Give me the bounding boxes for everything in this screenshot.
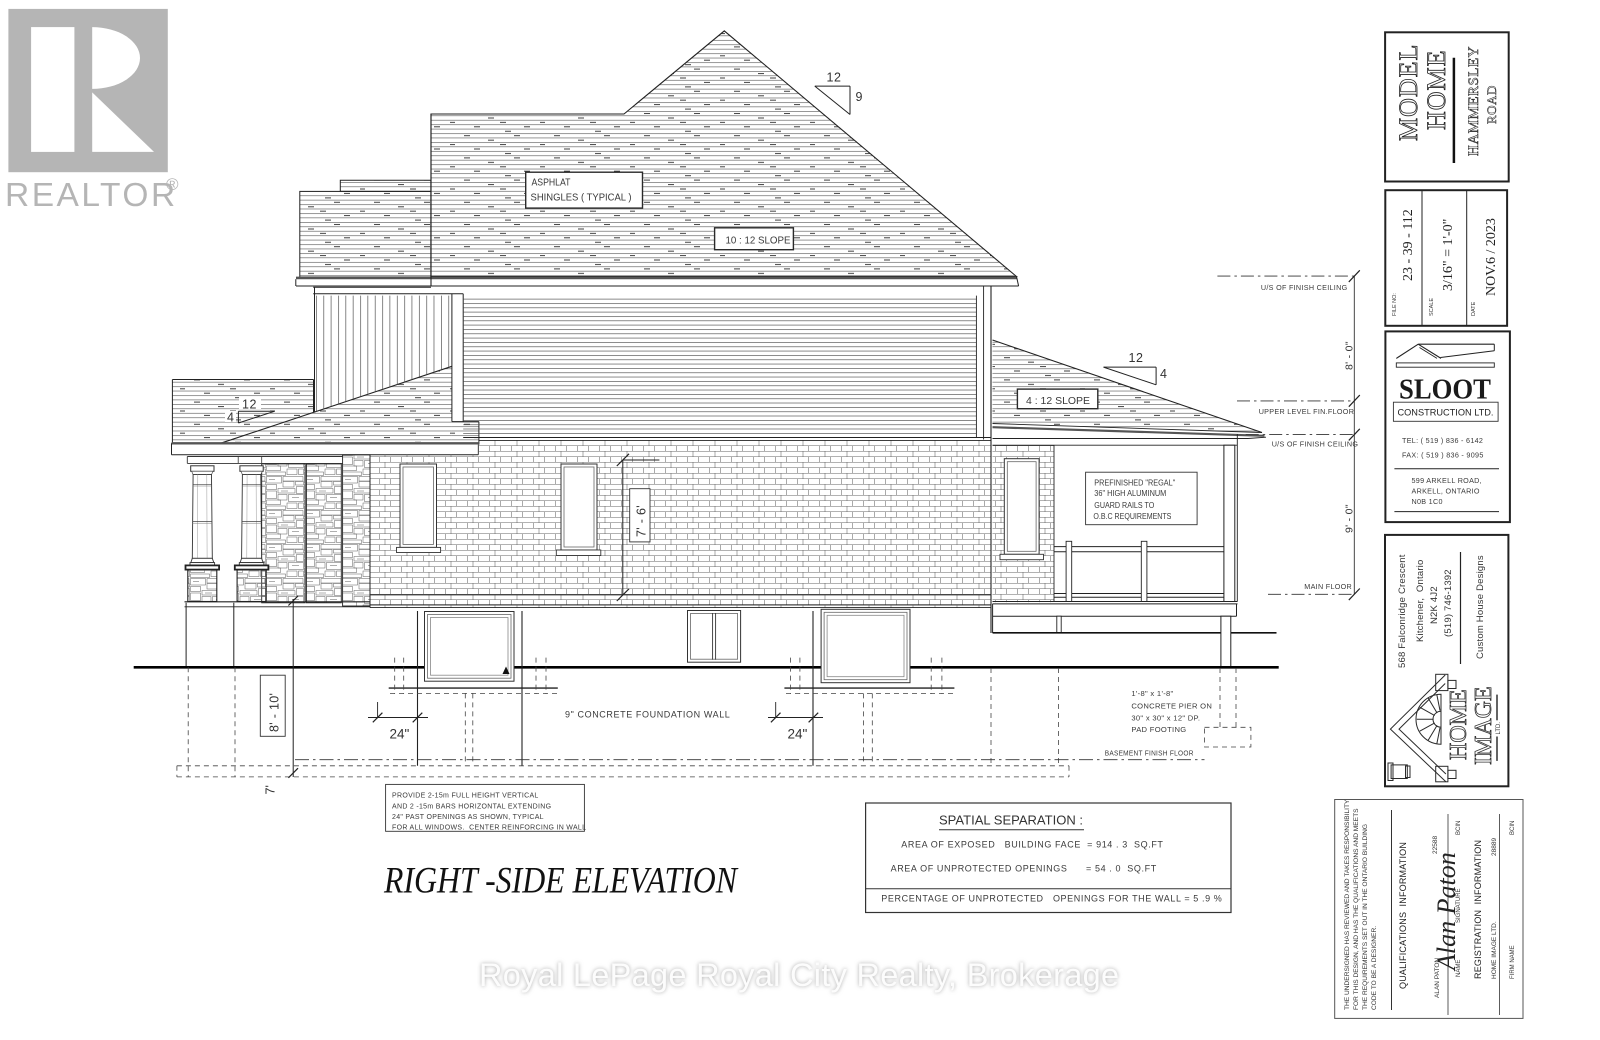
svg-text:FOR ALL WINDOWS. CENTER REINF: FOR ALL WINDOWS. CENTER REINFORCING IN W…: [392, 825, 586, 832]
svg-text:SHINGLES ( TYPICAL ): SHINGLES ( TYPICAL ): [531, 192, 632, 204]
svg-text:AREA OF UNPROTECTED OPENINGS: AREA OF UNPROTECTED OPENINGS = 54 . 0 SQ…: [891, 863, 1157, 873]
svg-text:10 : 12 SLOPE: 10 : 12 SLOPE: [726, 235, 791, 247]
svg-text:HOME: HOME: [1446, 689, 1472, 760]
svg-text:4: 4: [227, 411, 234, 425]
svg-text:CONSTRUCTION LTD.: CONSTRUCTION LTD.: [1398, 408, 1494, 418]
svg-text:FAX: ( 519 ) 836 - 9095: FAX: ( 519 ) 836 - 9095: [1402, 451, 1484, 460]
svg-text:HOME IMAGE LTD.: HOME IMAGE LTD.: [1491, 921, 1498, 979]
svg-text:9' - 0": 9' - 0": [1344, 504, 1356, 533]
svg-text:U/S OF FINISH CEILING: U/S OF FINISH CEILING: [1261, 283, 1348, 292]
svg-text:SLOOT: SLOOT: [1399, 374, 1491, 406]
svg-text:24": 24": [788, 727, 808, 742]
svg-text:BASEMENT FINISH FLOOR: BASEMENT FINISH FLOOR: [1105, 748, 1194, 757]
svg-text:THE UNDERSIGNED HAS REVIEWED A: THE UNDERSIGNED HAS REVIEWED AND TAKES R…: [1344, 799, 1351, 1010]
svg-text:12: 12: [1129, 351, 1144, 365]
svg-text:(519) 746-1392: (519) 746-1392: [1443, 569, 1454, 637]
svg-text:RIGHT -SIDE ELEVATION: RIGHT -SIDE ELEVATION: [383, 861, 739, 902]
svg-text:SPATIAL SEPARATION :: SPATIAL SEPARATION :: [939, 813, 1083, 828]
svg-text:PERCENTAGE OF UNPROTECTED OP: PERCENTAGE OF UNPROTECTED OPENINGS FOR T…: [881, 894, 1222, 904]
svg-text:9" CONCRETE FOUNDATION WALL: 9" CONCRETE FOUNDATION WALL: [565, 710, 730, 720]
svg-text:GUARD RAILS TO: GUARD RAILS TO: [1094, 501, 1154, 510]
svg-text:N2K 4J2: N2K 4J2: [1429, 586, 1440, 624]
svg-text:PREFINISHED "REGAL": PREFINISHED "REGAL": [1094, 479, 1175, 488]
svg-text:30" x 30" x 12" DP.: 30" x 30" x 12" DP.: [1131, 714, 1200, 723]
svg-text:8' - 10': 8' - 10': [268, 693, 282, 732]
svg-text:HOME: HOME: [1422, 49, 1451, 130]
svg-text:1'-8" x 1'-8": 1'-8" x 1'-8": [1131, 689, 1173, 698]
svg-text:4 : 12 SLOPE: 4 : 12 SLOPE: [1026, 395, 1090, 407]
svg-text:TEL: ( 519 ) 836 - 6142: TEL: ( 519 ) 836 - 6142: [1402, 436, 1483, 445]
svg-text:AREA OF EXPOSED BUILDING FAC: AREA OF EXPOSED BUILDING FACE = 914 . 3 …: [901, 840, 1163, 850]
svg-text:22588: 22588: [1432, 836, 1439, 854]
svg-text:IMAGE: IMAGE: [1471, 686, 1497, 765]
svg-text:8' - 0": 8' - 0": [1344, 341, 1356, 370]
svg-text:THE REQUIREMENTS SET OUT IN TH: THE REQUIREMENTS SET OUT IN THE ONTARIO …: [1362, 824, 1369, 1010]
svg-text:ROAD: ROAD: [1484, 85, 1499, 124]
svg-text:SCALE: SCALE: [1429, 298, 1435, 316]
svg-text:QUALIFICATIONS INFORMATION: QUALIFICATIONS INFORMATION: [1398, 842, 1408, 989]
svg-text:36" HIGH ALUMINUM: 36" HIGH ALUMINUM: [1094, 489, 1166, 498]
svg-text:FILE NO:: FILE NO:: [1392, 293, 1398, 316]
svg-text:PROVIDE 2-15m FULL HEIGHT VERT: PROVIDE 2-15m FULL HEIGHT VERTICAL: [392, 793, 539, 800]
svg-text:7' - 6': 7' - 6': [635, 505, 649, 537]
svg-text:PAD FOOTING: PAD FOOTING: [1131, 725, 1186, 734]
svg-text:SIGNATURE: SIGNATURE: [1456, 888, 1462, 923]
svg-text:BCIN: BCIN: [1456, 821, 1462, 835]
svg-text:599 ARKELL ROAD,: 599 ARKELL ROAD,: [1412, 476, 1482, 485]
svg-text:4: 4: [1160, 367, 1167, 381]
svg-text:REGISTRATION INFORMATION: REGISTRATION INFORMATION: [1473, 840, 1483, 979]
svg-text:9: 9: [856, 90, 863, 104]
svg-text:Custom House Designs: Custom House Designs: [1475, 555, 1486, 659]
svg-text:23 - 39 - 112: 23 - 39 - 112: [1401, 209, 1416, 281]
svg-text:BCIN: BCIN: [1510, 821, 1516, 835]
svg-text:U/S OF FINISH CEILING: U/S OF FINISH CEILING: [1272, 439, 1359, 448]
svg-text:DATE: DATE: [1471, 301, 1477, 316]
svg-text:LTD.: LTD.: [1496, 722, 1502, 735]
svg-text:Royal LePage Royal City Realty: Royal LePage Royal City Realty, Brokerag…: [479, 957, 1119, 993]
svg-text:UPPER LEVEL FIN.FLOOR: UPPER LEVEL FIN.FLOOR: [1259, 407, 1355, 416]
svg-text:MODEL: MODEL: [1394, 44, 1423, 141]
svg-text:3/16" = 1'-0": 3/16" = 1'-0": [1441, 219, 1456, 291]
svg-text:N0B 1C0: N0B 1C0: [1412, 497, 1443, 506]
svg-text:®: ®: [166, 175, 179, 194]
svg-text:12: 12: [827, 71, 842, 85]
svg-text:28889: 28889: [1491, 838, 1498, 856]
svg-text:REALTOR: REALTOR: [5, 177, 178, 214]
svg-text:FOR THIS DESIGN, AND HAS THE Q: FOR THIS DESIGN, AND HAS THE QUALIFICATI…: [1353, 808, 1360, 1010]
svg-text:NOV.6 / 2023: NOV.6 / 2023: [1484, 218, 1499, 296]
svg-text:ARKELL, ONTARIO: ARKELL, ONTARIO: [1412, 487, 1480, 496]
svg-text:568 Falconridge Crescent: 568 Falconridge Crescent: [1397, 554, 1408, 668]
svg-text:ASPHLAT: ASPHLAT: [532, 177, 571, 189]
svg-text:O.B.C REQUIREMENTS: O.B.C REQUIREMENTS: [1093, 512, 1171, 521]
svg-text:24": 24": [390, 727, 410, 742]
svg-text:FIRM NAME: FIRM NAME: [1510, 945, 1516, 979]
svg-text:7': 7': [264, 785, 278, 794]
svg-text:24" PAST OPENINGS AS SHOWN, TY: 24" PAST OPENINGS AS SHOWN, TYPICAL: [392, 814, 544, 821]
svg-text:HAMMERSLEY: HAMMERSLEY: [1466, 46, 1482, 156]
svg-text:NAME: NAME: [1456, 960, 1462, 977]
svg-text:12: 12: [242, 398, 257, 412]
svg-text:MAIN FLOOR: MAIN FLOOR: [1304, 582, 1352, 591]
svg-text:CODE TO BE A DESIGNER.: CODE TO BE A DESIGNER.: [1371, 926, 1378, 1010]
svg-text:AND 2 -15m BARS HORIZONTAL EXT: AND 2 -15m BARS HORIZONTAL EXTENDING: [392, 804, 551, 811]
svg-text:Kitchener, Ontario: Kitchener, Ontario: [1415, 560, 1426, 642]
svg-text:CONCRETE PIER ON: CONCRETE PIER ON: [1131, 702, 1212, 711]
